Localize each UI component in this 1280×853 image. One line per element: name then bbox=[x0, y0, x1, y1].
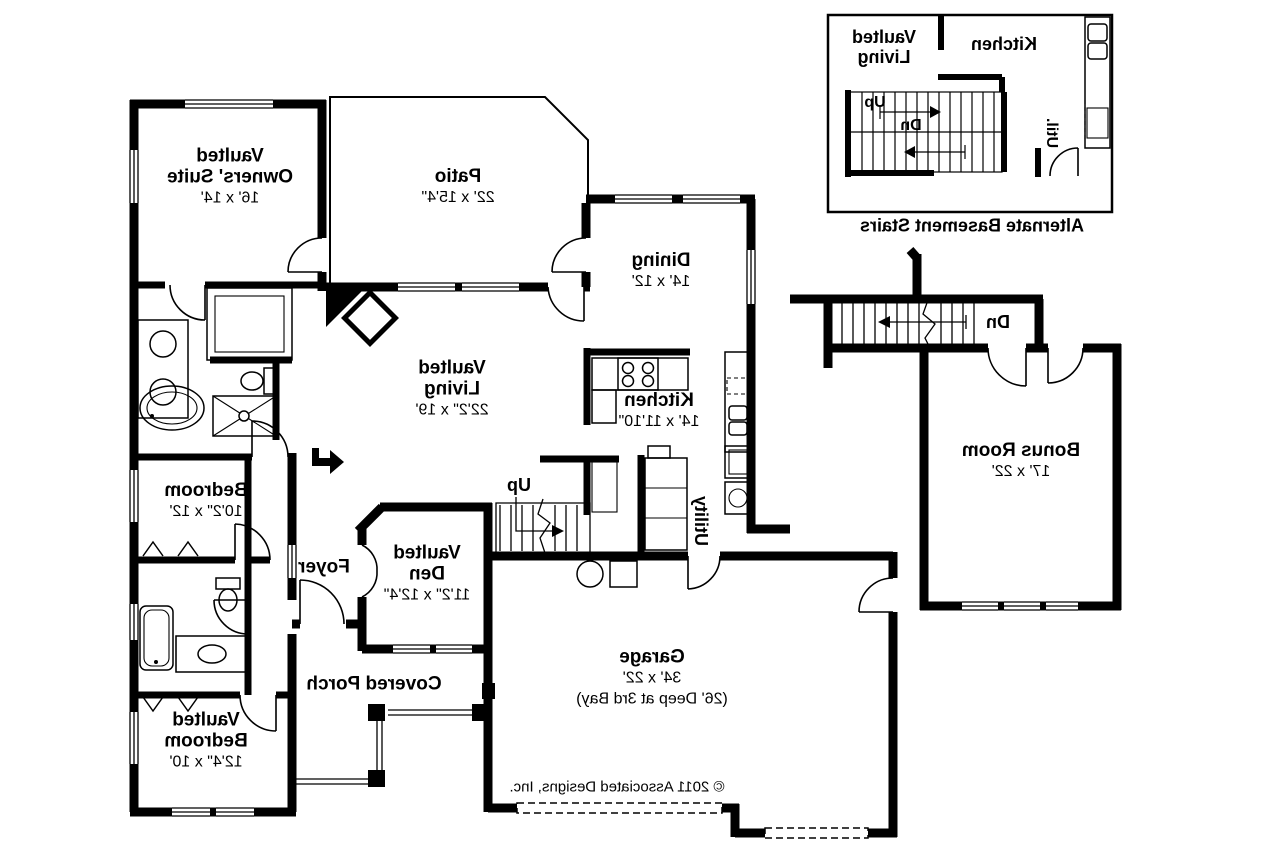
stair-label-dn: Dn bbox=[986, 312, 1010, 332]
bonus-room-name: Bonus Room bbox=[962, 440, 1080, 461]
door-patio-living bbox=[548, 287, 584, 321]
inset-util-door bbox=[1050, 148, 1078, 176]
living-dims: 22'2" x 19' bbox=[415, 400, 488, 421]
door-bonus-a bbox=[988, 348, 1026, 386]
owners-suite-dims: 16' x 14' bbox=[201, 188, 260, 209]
room-label-patio: Patio 22' x 15'4" bbox=[421, 166, 494, 208]
stair-label-up: Up bbox=[507, 475, 531, 495]
dining-name: Dining bbox=[631, 250, 690, 271]
stairs-up-main bbox=[496, 497, 590, 556]
window-bonus-bottom-1 bbox=[962, 600, 998, 612]
window-left-suite bbox=[128, 150, 140, 203]
vanity-sinks-icon bbox=[138, 320, 188, 418]
floor-plan-page: Vaulted Owners' Suite 16' x 14' Patio 22… bbox=[0, 0, 1280, 853]
dining-dims: 14' x 12' bbox=[632, 271, 691, 292]
door-garage-side bbox=[859, 578, 893, 612]
room-label-den: Vaulted Den 11'2" x 12'4" bbox=[384, 543, 471, 606]
window-living-north-1 bbox=[398, 281, 455, 293]
window-dining-top-2 bbox=[683, 193, 740, 205]
window-foyer-west bbox=[286, 545, 298, 578]
owners-suite-line1: Vaulted bbox=[196, 146, 264, 167]
hall-arrow-icon bbox=[312, 448, 344, 474]
foyer-name: Foyer bbox=[298, 557, 350, 578]
bathtub-icon bbox=[140, 606, 173, 670]
covered-porch-name: Covered Porch bbox=[306, 674, 441, 695]
utility-name: Utility bbox=[691, 496, 711, 546]
pantry-cabinet bbox=[645, 446, 687, 550]
bathtub-icon bbox=[140, 386, 204, 430]
den-line2: Den bbox=[409, 564, 445, 585]
inset-label-living: Vaulted Living bbox=[852, 27, 916, 67]
inset-caption-text: Alternate Basement Stairs bbox=[860, 216, 1084, 237]
window-east-dining bbox=[745, 250, 757, 304]
up-text: Up bbox=[507, 475, 531, 495]
door-bath2 bbox=[214, 600, 248, 634]
inset-dn-text: Dn bbox=[900, 117, 921, 135]
window-left-bedroom2 bbox=[128, 712, 140, 764]
hall-bath bbox=[140, 578, 248, 672]
bedroom2-line1: Vaulted bbox=[172, 710, 240, 731]
window-den-south-2 bbox=[436, 643, 472, 655]
garage-note: (26' Deep at 3rd Bay) bbox=[576, 689, 728, 710]
room-label-foyer: Foyer bbox=[298, 557, 350, 578]
window-bed2-bottom-2 bbox=[216, 806, 254, 818]
sink-icon bbox=[729, 406, 747, 435]
closet-chevrons bbox=[143, 542, 198, 711]
toilet-icon bbox=[216, 578, 240, 611]
living-line2: Living bbox=[424, 379, 480, 400]
bedroom1-dims: 10'2" x 12' bbox=[169, 501, 242, 522]
inset-living-line2: Living bbox=[858, 47, 911, 67]
inset-caption: Alternate Basement Stairs bbox=[860, 216, 1084, 237]
window-bonus-bottom-3 bbox=[1046, 600, 1078, 612]
toilet-icon bbox=[241, 368, 276, 394]
owners-suite-line2: Owners' Suite bbox=[167, 167, 293, 188]
room-label-bonus-room: Bonus Room 17' x 22' bbox=[962, 440, 1080, 482]
room-label-kitchen: Kitchen 14' x 11'10" bbox=[619, 390, 700, 432]
dn-text: Dn bbox=[986, 312, 1010, 332]
fireplace-icon bbox=[326, 291, 395, 343]
sink-icon bbox=[1088, 24, 1107, 59]
kitchen-name: Kitchen bbox=[624, 390, 694, 411]
room-label-bedroom2: Vaulted Bedroom 12'4" x 10' bbox=[164, 710, 247, 773]
window-den-south-1 bbox=[393, 643, 430, 655]
den-dims: 11'2" x 12'4" bbox=[384, 585, 471, 606]
inset-util-text: Util. bbox=[1042, 118, 1060, 148]
copyright-text: © 2011 Associated Designs, Inc. bbox=[509, 777, 724, 798]
door-patio-dining bbox=[552, 238, 586, 272]
inset-label-util: Util. bbox=[1042, 118, 1060, 148]
door-bonus-b bbox=[1048, 348, 1083, 383]
copyright-line: © 2011 Associated Designs, Inc. bbox=[509, 777, 724, 798]
closet-shelves bbox=[207, 288, 292, 360]
room-label-covered-porch: Covered Porch bbox=[306, 674, 441, 695]
door-suite-bath bbox=[170, 285, 205, 320]
door-bedroom1 bbox=[252, 421, 288, 457]
garage-dims: 34' x 22' bbox=[623, 668, 682, 689]
living-line1: Vaulted bbox=[418, 358, 486, 379]
shower-icon bbox=[213, 396, 276, 436]
inset-label-kitchen: Kitchen bbox=[971, 34, 1037, 54]
window-bonus-bottom-2 bbox=[1004, 600, 1040, 612]
door-front-entry bbox=[300, 580, 344, 624]
bedroom1-name: Bedroom bbox=[164, 480, 247, 501]
bedroom2-dims: 12'4" x 10' bbox=[169, 752, 242, 773]
washer-icon bbox=[725, 446, 751, 478]
stairs-basement-hall bbox=[842, 300, 974, 350]
window-suite-top bbox=[185, 98, 273, 110]
garage-doors bbox=[517, 803, 868, 838]
window-dining-top-1 bbox=[615, 193, 672, 205]
room-label-bedroom1: Bedroom 10'2" x 12' bbox=[164, 480, 247, 522]
door-owners-suite bbox=[288, 238, 322, 272]
window-left-bath2 bbox=[128, 604, 140, 640]
door-bedroom1-closet bbox=[235, 524, 270, 560]
inset-label-up: Up bbox=[864, 94, 885, 112]
room-label-dining: Dining 14' x 12' bbox=[631, 250, 690, 292]
inset-living-line1: Vaulted bbox=[852, 27, 916, 47]
room-label-utility: Utility bbox=[691, 496, 711, 546]
window-bed2-bottom-1 bbox=[172, 806, 210, 818]
den-curved-opening bbox=[362, 545, 377, 597]
inset-label-dn: Dn bbox=[900, 117, 921, 135]
vanity-sink-icon bbox=[176, 636, 248, 672]
patio-name: Patio bbox=[435, 166, 481, 187]
garage-name: Garage bbox=[619, 647, 684, 668]
bedroom2-line2: Bedroom bbox=[164, 731, 247, 752]
kitchen-dims: 14' x 11'10" bbox=[619, 411, 700, 432]
room-label-living: Vaulted Living 22'2" x 19' bbox=[415, 358, 488, 421]
porch-posts bbox=[368, 704, 489, 787]
door-utility-garage bbox=[688, 556, 720, 589]
window-living-north-2 bbox=[462, 281, 519, 293]
stove-icon bbox=[618, 358, 658, 390]
window-left-bedroom1 bbox=[128, 470, 140, 522]
room-label-owners-suite: Vaulted Owners' Suite 16' x 14' bbox=[167, 146, 293, 209]
kitchen-fixtures bbox=[592, 352, 751, 550]
patio-dims: 22' x 15'4" bbox=[421, 187, 494, 208]
room-label-garage: Garage 34' x 22' (26' Deep at 3rd Bay) bbox=[576, 647, 728, 710]
water-heater-icon bbox=[577, 561, 637, 587]
inset-kitchen-name: Kitchen bbox=[971, 34, 1037, 54]
inset-kitchen-counter bbox=[1085, 17, 1110, 148]
inset-up-text: Up bbox=[864, 94, 885, 112]
den-line1: Vaulted bbox=[393, 543, 461, 564]
bonus-room-dims: 17' x 22' bbox=[992, 461, 1051, 482]
garage-wall-pilaster bbox=[482, 683, 495, 699]
